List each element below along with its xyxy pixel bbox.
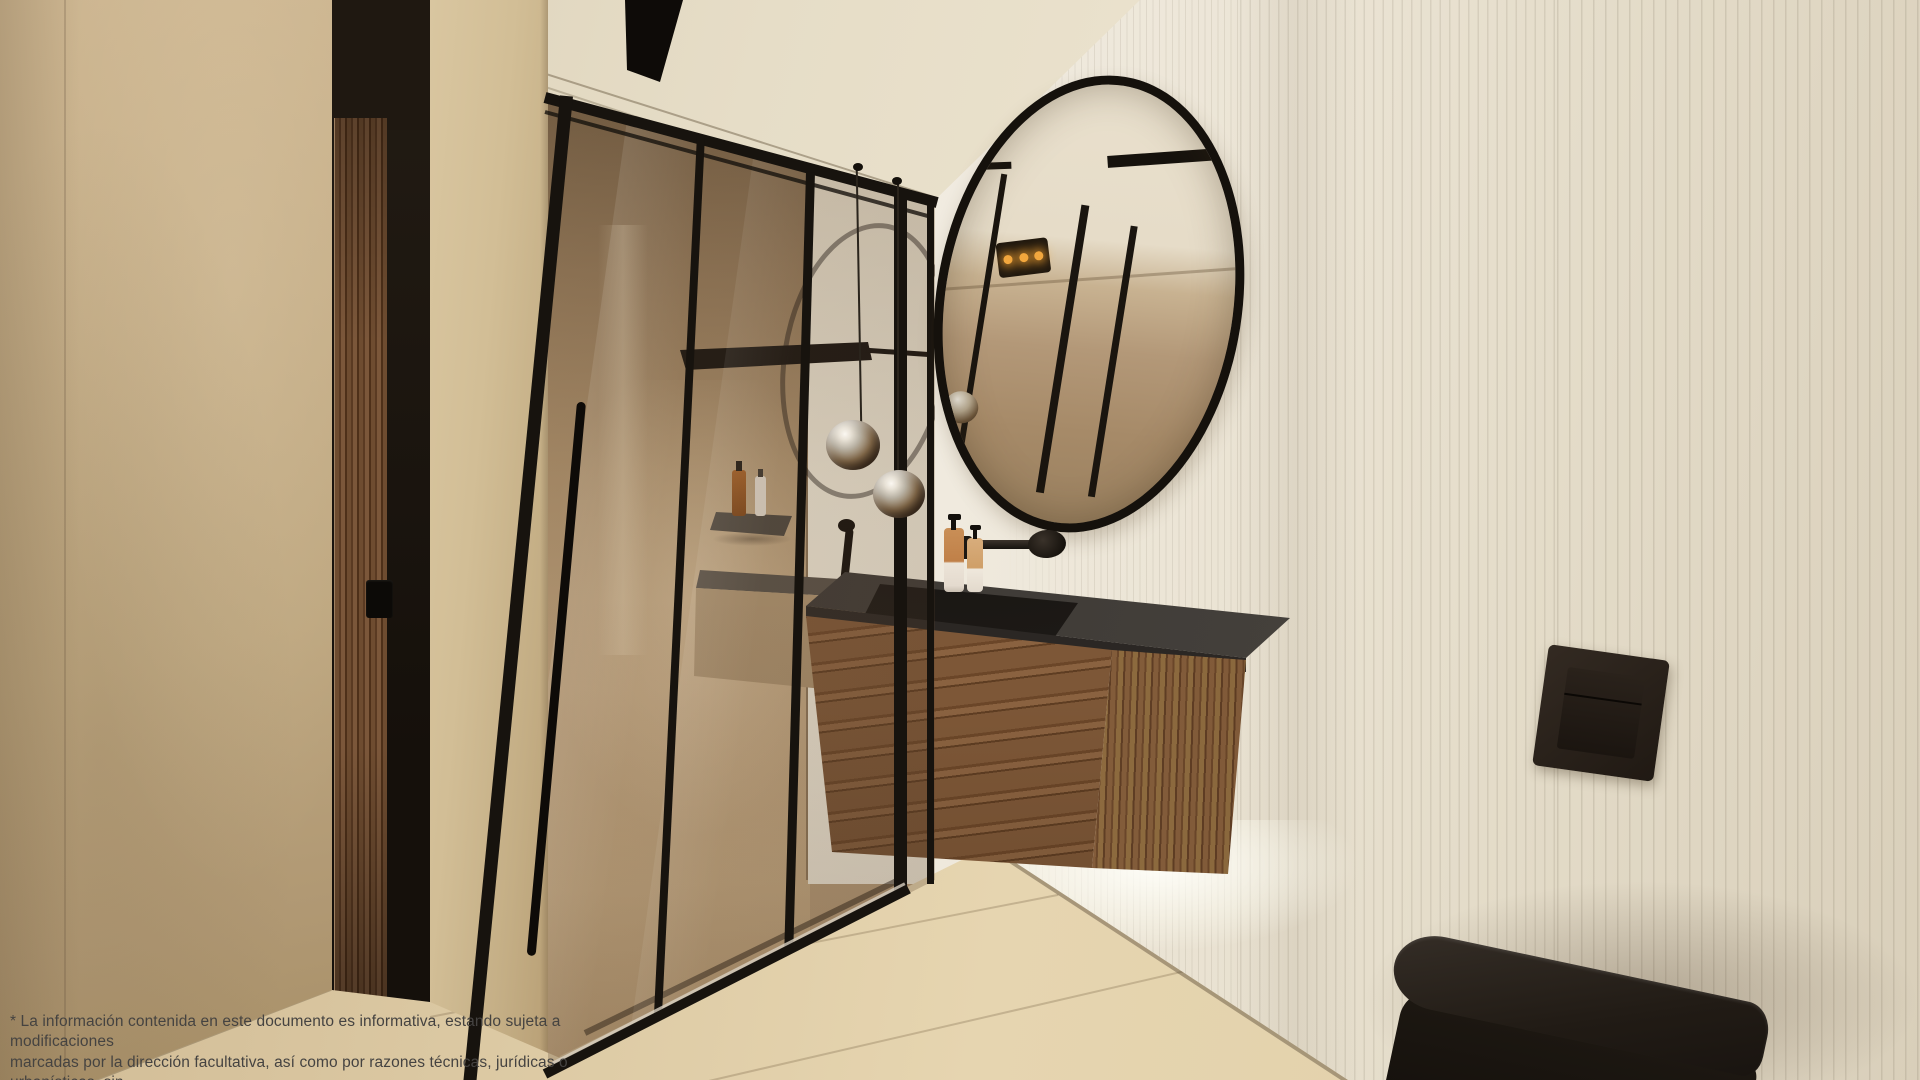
bathroom-render: * La información contenida en este docum… [0,0,1920,1080]
soap-pump-head [948,514,961,520]
disclaimer-text: * La información contenida en este docum… [10,1012,590,1080]
pendant-canopy [853,163,863,171]
pendant-cord-2 [897,184,899,474]
doorway [332,0,430,1080]
chrome-pendant-lamp-2 [873,470,925,518]
stone-tile-seam [64,0,66,1080]
disclaimer-line-1: * La información contenida en este docum… [10,1012,590,1053]
walnut-door [334,118,387,1014]
soap-bottle-amber-2 [967,538,983,592]
stone-wall-left [0,0,332,1080]
stone-wall-corner-shade [0,0,332,1080]
glass-frame-stile-right [894,192,907,892]
disclaimer-line-2: marcadas por la dirección facultativa, a… [10,1053,590,1080]
glass-frame-wall-stile [927,198,934,884]
pendant-canopy-2 [892,177,902,185]
flush-plate [1532,644,1670,782]
door-handle [366,580,393,618]
soap-bottle-amber [944,528,964,592]
floor-tile-seam-2 [700,956,1246,1080]
chrome-pendant-lamp [826,420,880,470]
soap-pump-head-2 [970,525,981,530]
door-lintel [332,0,430,130]
flush-button [1557,667,1646,759]
flush-button-seam [1564,693,1642,706]
